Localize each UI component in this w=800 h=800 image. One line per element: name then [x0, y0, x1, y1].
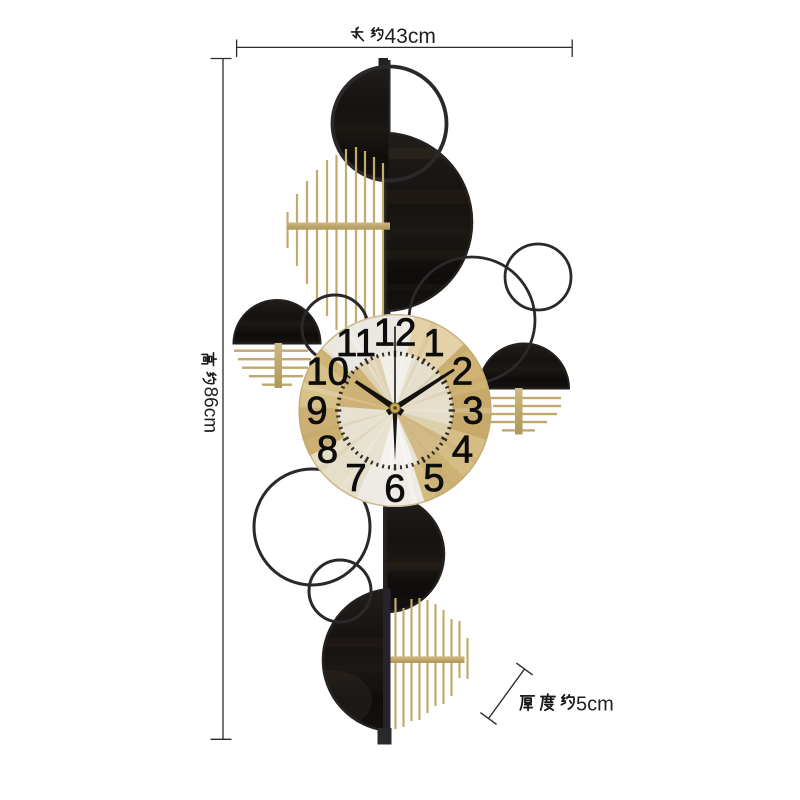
svg-text:4: 4 [452, 429, 473, 472]
svg-text:8: 8 [317, 429, 338, 472]
svg-text:5: 5 [423, 457, 444, 500]
svg-text:9: 9 [306, 390, 327, 433]
svg-text:3: 3 [462, 390, 483, 433]
svg-text:6: 6 [384, 468, 405, 511]
svg-text:7: 7 [345, 457, 366, 500]
svg-text:43cm: 43cm [385, 25, 436, 48]
svg-text:11: 11 [336, 322, 376, 365]
svg-text:86cm: 86cm [199, 387, 220, 433]
svg-text:1: 1 [423, 322, 444, 365]
svg-text:2: 2 [452, 351, 473, 394]
svg-text:5cm: 5cm [576, 694, 614, 716]
